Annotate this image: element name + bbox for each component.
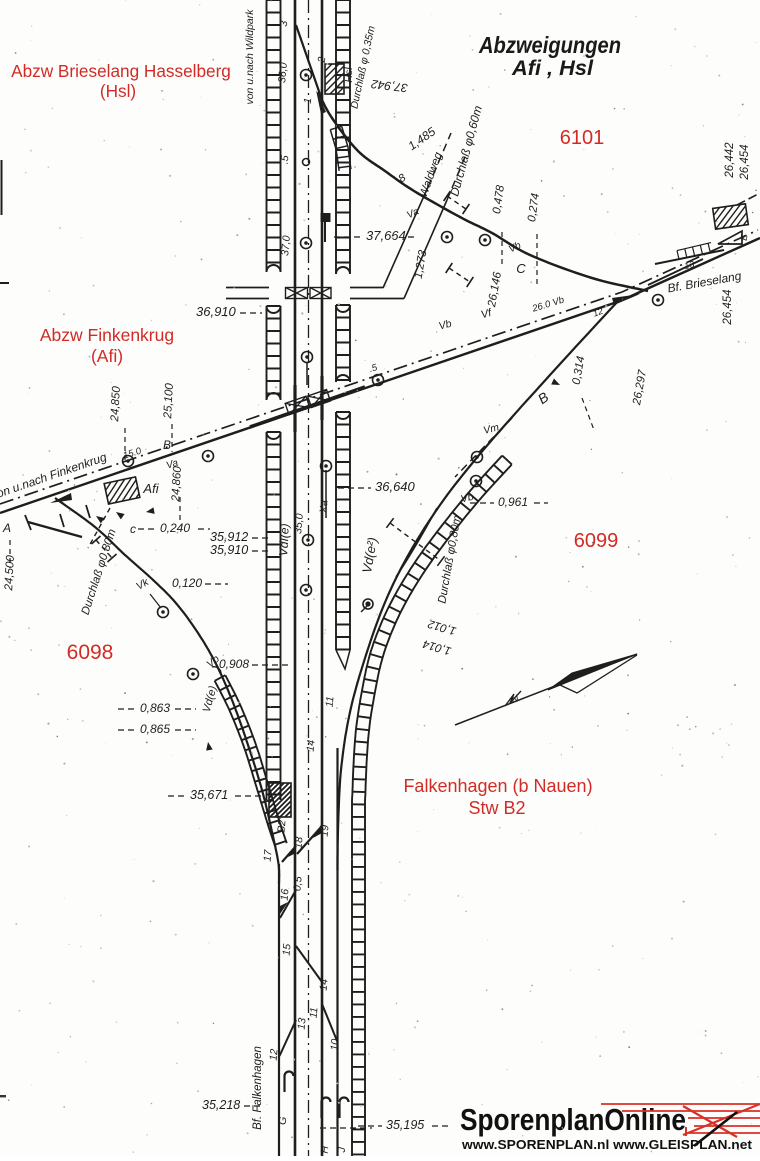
svg-text:(Hsl): (Hsl): [100, 81, 136, 101]
svg-text:36,0: 36,0: [276, 62, 290, 84]
svg-text:24,860: 24,860: [170, 465, 184, 502]
svg-text:Abzw Brieselang Hasselberg: Abzw Brieselang Hasselberg: [11, 61, 231, 81]
svg-text:18: 18: [293, 836, 306, 849]
svg-text:11: 11: [324, 696, 337, 708]
svg-text:0,5: 0,5: [291, 876, 304, 892]
svg-text:35,218: 35,218: [202, 1098, 240, 1112]
svg-text:10: 10: [329, 1038, 342, 1051]
svg-text:26,454: 26,454: [722, 289, 734, 325]
svg-text:1: 1: [302, 97, 314, 104]
svg-text:36,640: 36,640: [375, 479, 416, 494]
svg-text:37,664: 37,664: [366, 228, 406, 243]
svg-text:B: B: [163, 438, 171, 452]
svg-text:12: 12: [268, 1048, 281, 1061]
svg-text:Falkenhagen (b Nauen): Falkenhagen (b Nauen): [403, 776, 592, 796]
svg-text:VdI(e): VdI(e): [276, 523, 292, 556]
svg-text:17: 17: [262, 848, 275, 862]
svg-text:Afi: Afi: [142, 481, 159, 496]
svg-text:0,865: 0,865: [140, 722, 170, 736]
svg-text:15: 15: [281, 943, 294, 956]
svg-text:6101: 6101: [560, 127, 605, 149]
svg-text:35,912: 35,912: [210, 530, 248, 544]
svg-text:Bf. Falkenhagen: Bf. Falkenhagen: [252, 1046, 264, 1130]
svg-text:14: 14: [318, 978, 331, 991]
svg-text:6098: 6098: [67, 641, 114, 664]
svg-text:.B2°: .B2°: [275, 815, 289, 836]
svg-text:11: 11: [308, 1007, 321, 1019]
svg-text:Stw B2: Stw B2: [468, 798, 525, 818]
svg-text:.5: .5: [279, 155, 292, 165]
svg-text:0,961: 0,961: [498, 495, 528, 509]
svg-text:36,910: 36,910: [196, 304, 237, 319]
svg-text:Xa: Xa: [317, 500, 330, 515]
svg-text:0,240: 0,240: [160, 521, 190, 535]
svg-text:www.SPORENPLAN.nl www.GLEISPL: www.SPORENPLAN.nl www.GLEISPLAN.net: [461, 1137, 753, 1152]
svg-text:Hsl: Hsl: [343, 67, 355, 83]
svg-text:Afi , Hsl: Afi , Hsl: [511, 57, 594, 80]
svg-text:26,442: 26,442: [724, 142, 736, 179]
svg-text:0,863: 0,863: [140, 701, 170, 715]
svg-text:26,454: 26,454: [739, 144, 751, 180]
svg-text:Abzw Finkenkrug: Abzw Finkenkrug: [40, 325, 174, 345]
svg-text:3: 3: [278, 20, 290, 27]
svg-text:A: A: [2, 521, 11, 535]
svg-text:SporenplanOnline: SporenplanOnline: [460, 1102, 686, 1137]
svg-text:16: 16: [279, 888, 292, 901]
svg-text:35,671: 35,671: [190, 788, 228, 802]
svg-text:G: G: [277, 1116, 290, 1125]
svg-text:0,120: 0,120: [172, 576, 202, 590]
svg-text:c: c: [130, 522, 136, 536]
svg-text:14: 14: [305, 739, 318, 752]
svg-text:24,850: 24,850: [109, 385, 123, 422]
svg-text:35,910: 35,910: [210, 543, 248, 557]
svg-text:13: 13: [296, 1017, 309, 1030]
svg-text:H: H: [319, 1145, 332, 1154]
svg-text:35,0: 35,0: [292, 513, 306, 535]
svg-text:35,195: 35,195: [386, 1118, 424, 1132]
svg-text:C: C: [516, 261, 526, 276]
svg-text:0,908: 0,908: [219, 657, 249, 671]
svg-text:37,0: 37,0: [279, 235, 293, 257]
svg-text:(Afi): (Afi): [91, 346, 123, 366]
svg-text:Abzweigungen: Abzweigungen: [478, 32, 621, 58]
svg-text:von u.nach Wildpark: von u.nach Wildpark: [244, 9, 256, 105]
svg-text:25,100: 25,100: [162, 382, 176, 419]
svg-text:19: 19: [319, 824, 332, 837]
svg-text:6099: 6099: [574, 530, 619, 552]
svg-text:2: 2: [316, 56, 329, 64]
